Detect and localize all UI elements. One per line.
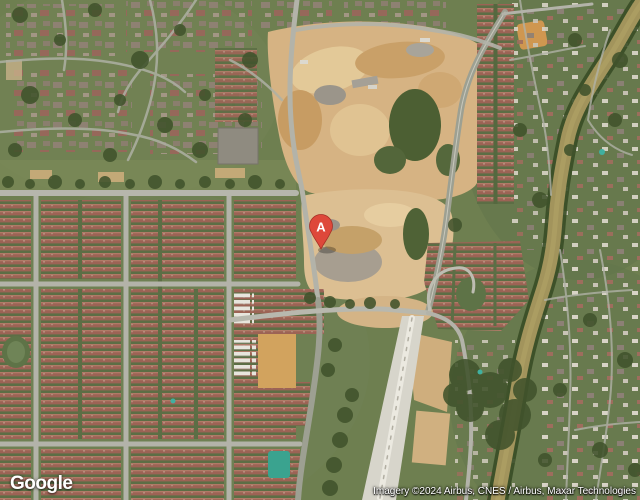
large-flat-roof-building	[218, 128, 258, 164]
warehouse-roofs	[234, 340, 256, 376]
dirt-lot	[258, 334, 296, 388]
marker-label: A	[316, 220, 326, 235]
map-viewport[interactable]: A Google Imagery ©2024 Airbus, CNES / Ai…	[0, 0, 640, 500]
rowhouse-columns	[477, 4, 514, 204]
satellite-map[interactable]: A	[0, 0, 640, 500]
google-logo[interactable]: Google	[10, 473, 72, 495]
village-pool	[599, 149, 605, 155]
map-attribution: Imagery ©2024 Airbus, CNES / Airbus, Max…	[373, 486, 636, 497]
sports-court	[268, 451, 290, 478]
village-pool	[478, 370, 483, 375]
housing-estate	[0, 200, 324, 500]
